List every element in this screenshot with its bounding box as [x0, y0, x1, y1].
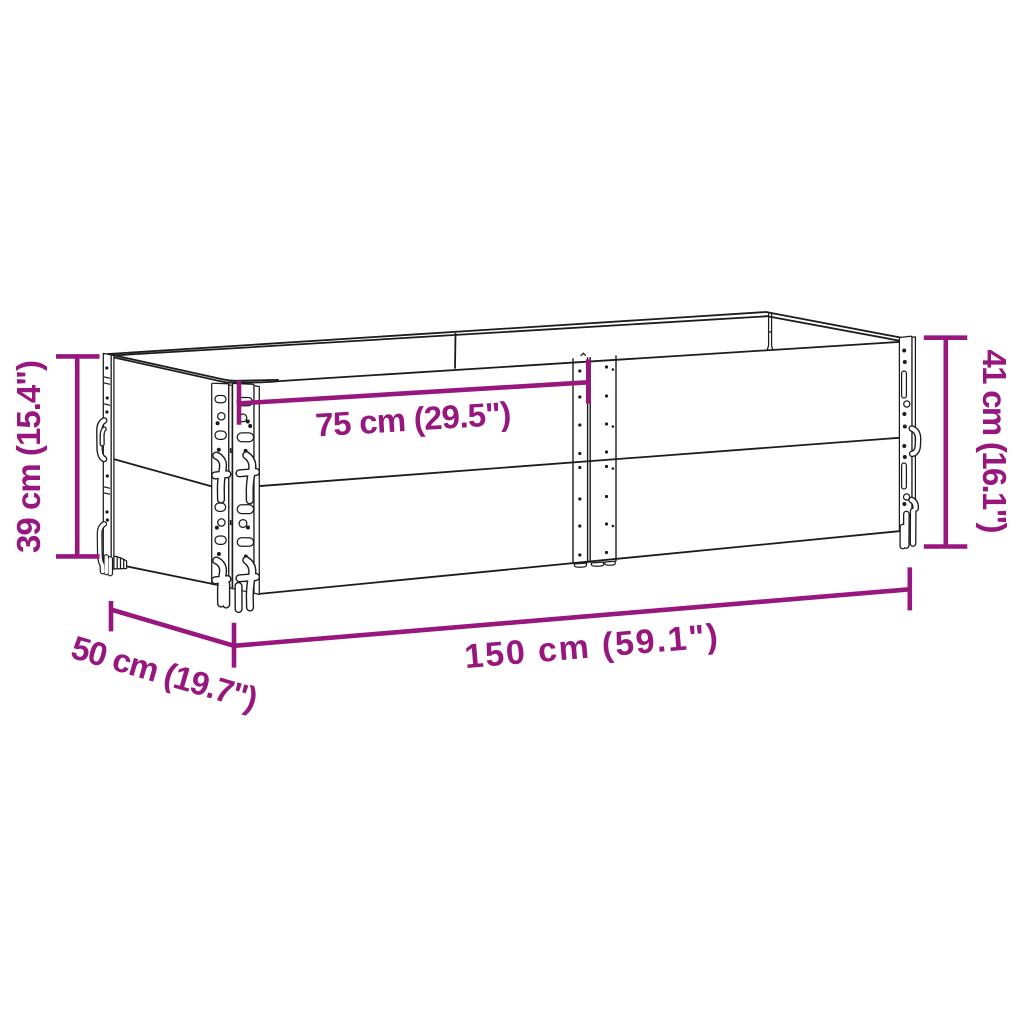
svg-text:75 cm (29.5"): 75 cm (29.5") [314, 395, 512, 444]
svg-text:150 cm (59.1"): 150 cm (59.1") [463, 617, 719, 676]
svg-text:41 cm (16.1"): 41 cm (16.1") [976, 350, 1013, 534]
svg-text:39 cm (15.4"): 39 cm (15.4") [10, 360, 47, 553]
